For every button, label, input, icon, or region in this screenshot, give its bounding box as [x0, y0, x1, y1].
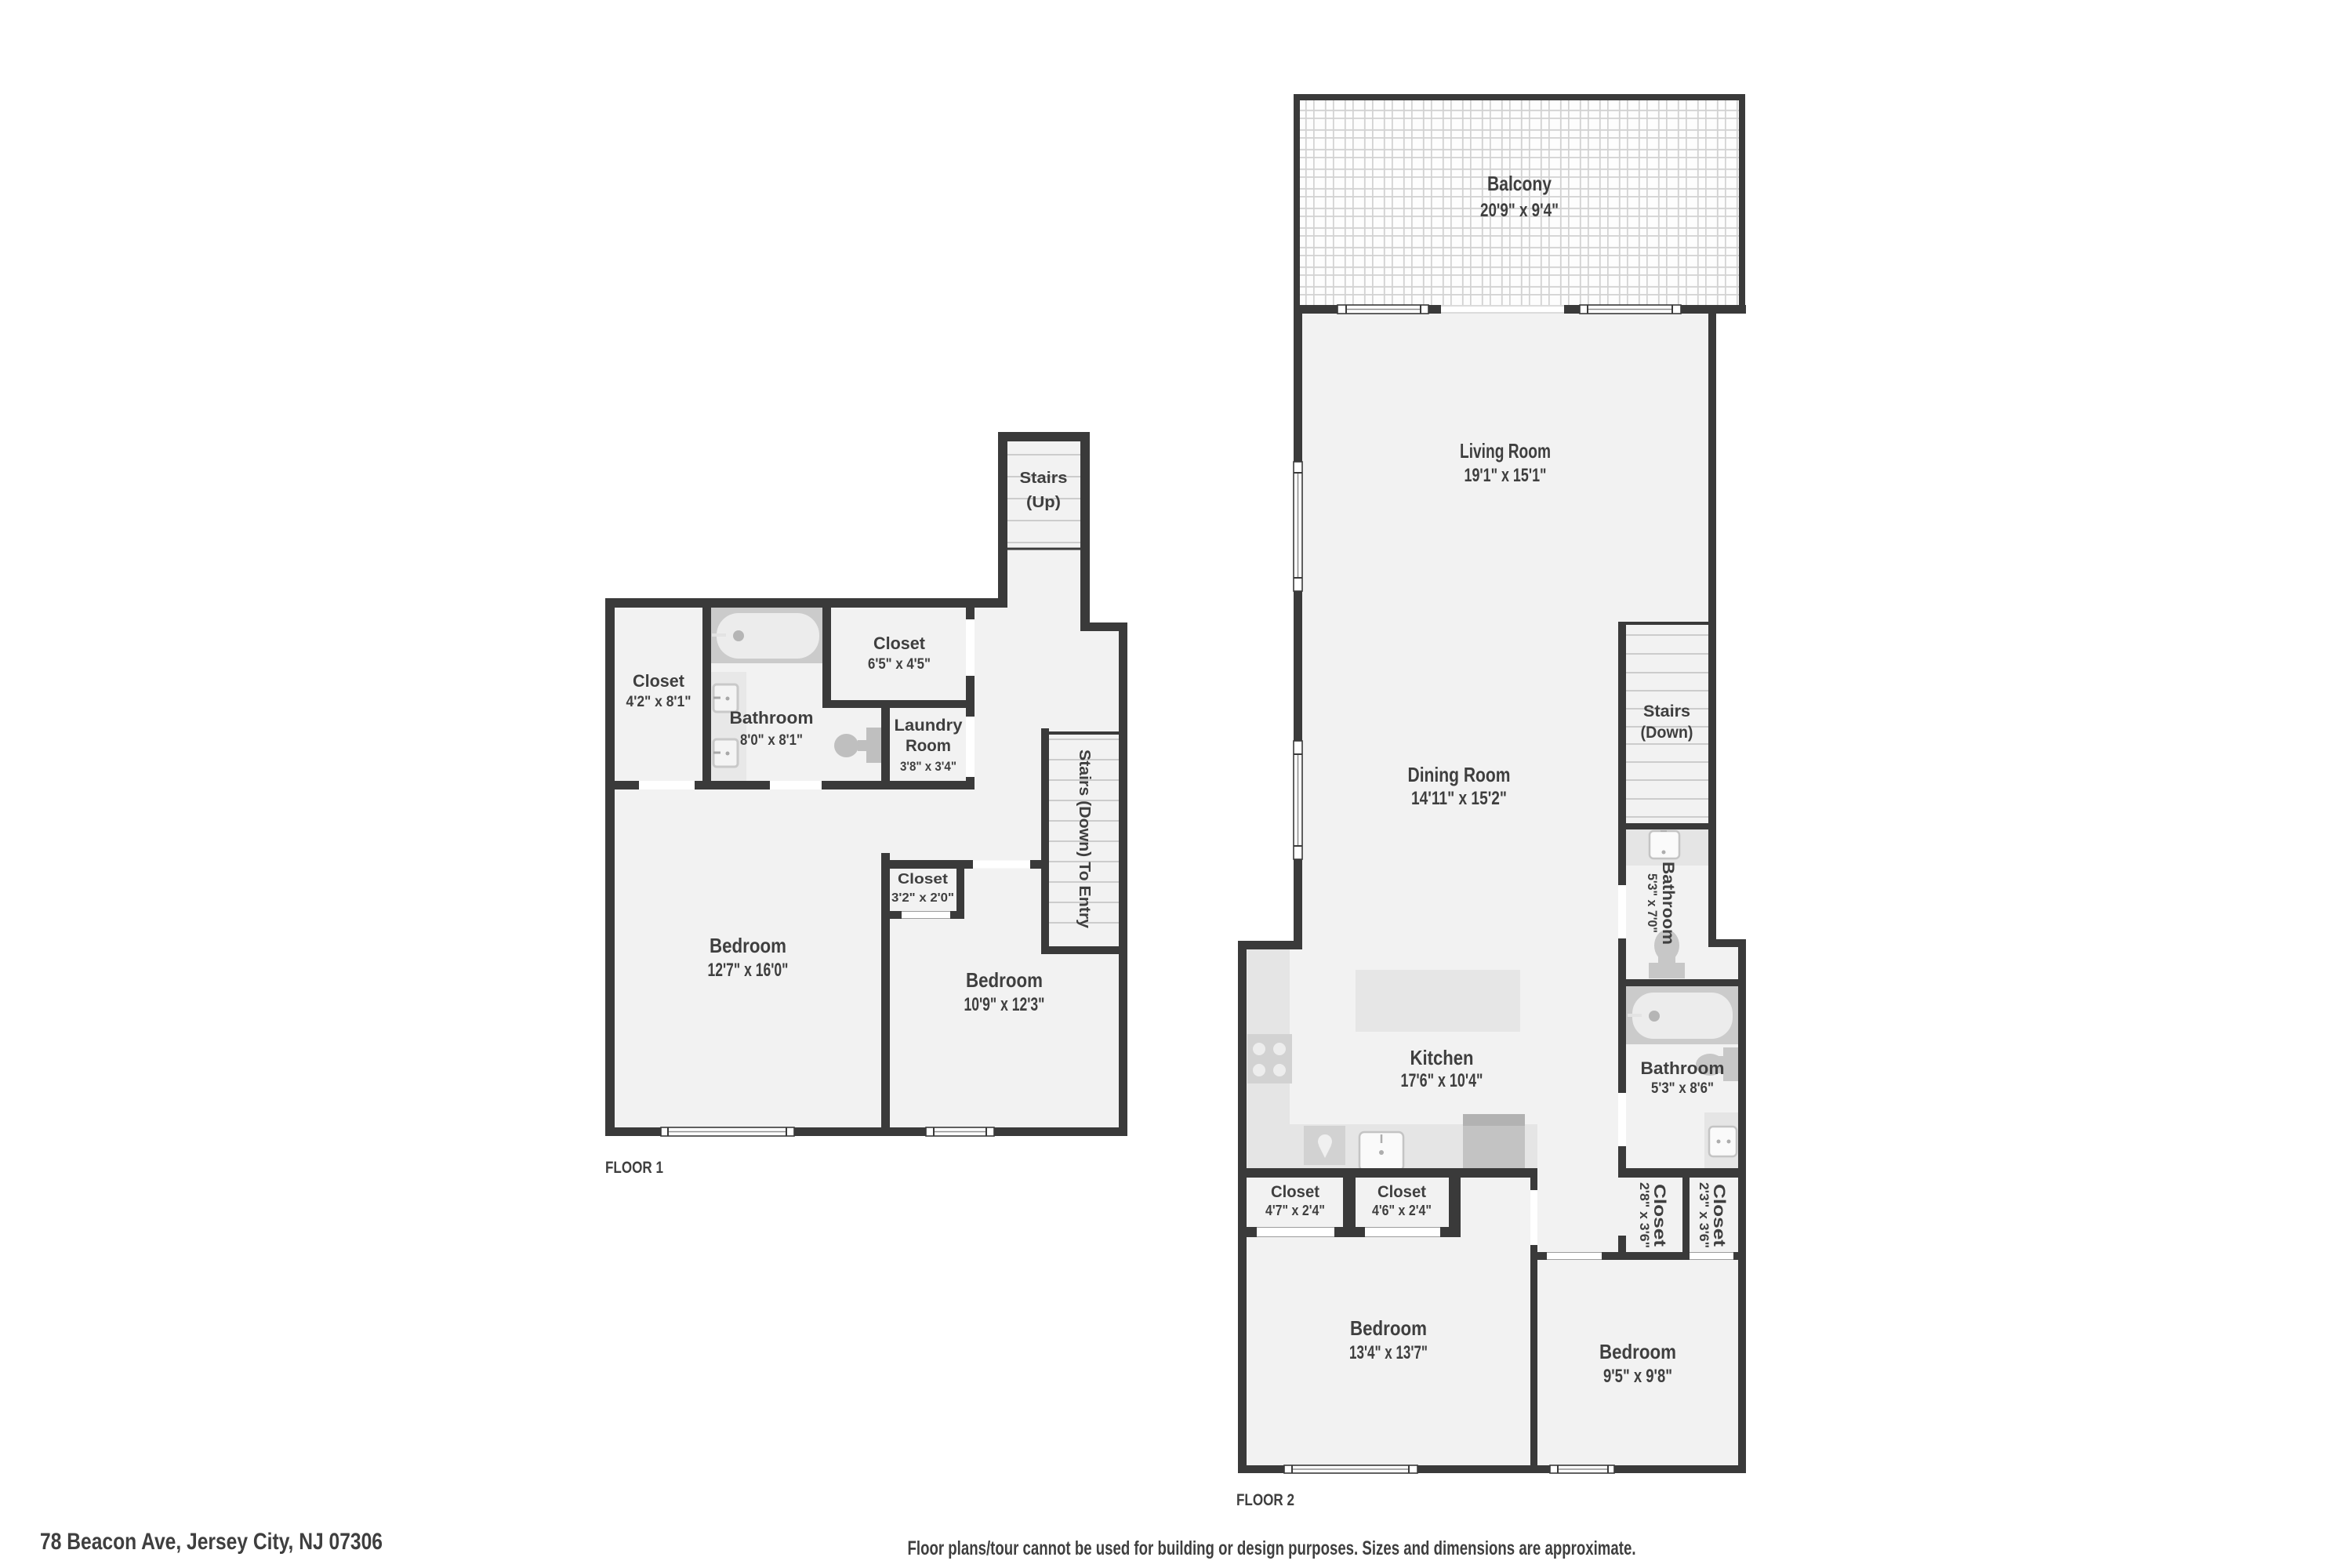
svg-text:Bedroom: Bedroom — [966, 968, 1043, 992]
svg-text:Bathroom: Bathroom — [1641, 1058, 1725, 1078]
svg-text:FLOOR 1: FLOOR 1 — [605, 1159, 663, 1177]
svg-text:19'1" x 15'1": 19'1" x 15'1" — [1465, 465, 1547, 486]
svg-text:Closet: Closet — [898, 871, 948, 887]
svg-text:Closet: Closet — [1271, 1183, 1319, 1201]
svg-text:Closet: Closet — [873, 633, 926, 653]
svg-text:Closet: Closet — [1710, 1184, 1728, 1247]
svg-text:6'5" x 4'5": 6'5" x 4'5" — [868, 656, 931, 673]
svg-text:4'7" x 2'4": 4'7" x 2'4" — [1265, 1203, 1325, 1218]
svg-text:Bedroom: Bedroom — [1350, 1316, 1427, 1340]
svg-text:Stairs: Stairs — [1020, 470, 1068, 487]
svg-text:Bedroom: Bedroom — [1599, 1340, 1676, 1363]
svg-text:17'6" x 10'4": 17'6" x 10'4" — [1401, 1070, 1483, 1091]
svg-text:9'5" x 9'8": 9'5" x 9'8" — [1603, 1366, 1672, 1387]
svg-text:Stairs (Down) To Entry: Stairs (Down) To Entry — [1076, 750, 1093, 929]
svg-text:Room: Room — [906, 737, 951, 755]
svg-text:2'3" x 3'6": 2'3" x 3'6" — [1697, 1182, 1711, 1248]
svg-text:4'2" x 8'1": 4'2" x 8'1" — [626, 694, 691, 710]
svg-text:3'8" x 3'4": 3'8" x 3'4" — [900, 759, 956, 774]
svg-text:Dining Room: Dining Room — [1408, 763, 1511, 786]
svg-text:(Down): (Down) — [1641, 724, 1693, 742]
svg-text:Bathroom: Bathroom — [1659, 862, 1677, 945]
svg-text:Closet: Closet — [633, 671, 685, 691]
svg-text:12'7" x 16'0": 12'7" x 16'0" — [708, 960, 789, 981]
svg-text:5'3" x 8'6": 5'3" x 8'6" — [1651, 1080, 1714, 1097]
svg-text:13'4" x 13'7": 13'4" x 13'7" — [1349, 1342, 1428, 1363]
svg-text:Floor plans/tour cannot be use: Floor plans/tour cannot be used for buil… — [908, 1537, 1636, 1559]
svg-text:2'8" x 3'6": 2'8" x 3'6" — [1637, 1182, 1652, 1248]
svg-text:14'11" x 15'2": 14'11" x 15'2" — [1411, 788, 1507, 809]
svg-text:78 Beacon Ave, Jersey City, NJ: 78 Beacon Ave, Jersey City, NJ 07306 — [40, 1529, 383, 1555]
svg-text:Stairs: Stairs — [1643, 702, 1690, 720]
svg-text:FLOOR 2: FLOOR 2 — [1236, 1491, 1294, 1509]
svg-text:20'9" x 9'4": 20'9" x 9'4" — [1480, 200, 1559, 221]
svg-text:8'0" x 8'1": 8'0" x 8'1" — [740, 732, 803, 749]
svg-text:Bedroom: Bedroom — [710, 934, 786, 957]
svg-text:3'2" x 2'0": 3'2" x 2'0" — [891, 891, 954, 905]
svg-text:Kitchen: Kitchen — [1410, 1046, 1474, 1069]
svg-text:Laundry: Laundry — [895, 717, 963, 735]
svg-text:5'3" x 7'0": 5'3" x 7'0" — [1645, 873, 1660, 933]
svg-text:(Up): (Up) — [1026, 494, 1061, 511]
svg-text:10'9" x 12'3": 10'9" x 12'3" — [964, 994, 1045, 1015]
svg-text:Balcony: Balcony — [1487, 172, 1552, 195]
svg-text:Bathroom: Bathroom — [730, 708, 814, 728]
svg-text:Closet: Closet — [1377, 1183, 1426, 1201]
svg-text:4'6" x 2'4": 4'6" x 2'4" — [1372, 1203, 1432, 1218]
svg-text:Closet: Closet — [1650, 1184, 1668, 1247]
svg-text:Living Room: Living Room — [1460, 439, 1551, 463]
